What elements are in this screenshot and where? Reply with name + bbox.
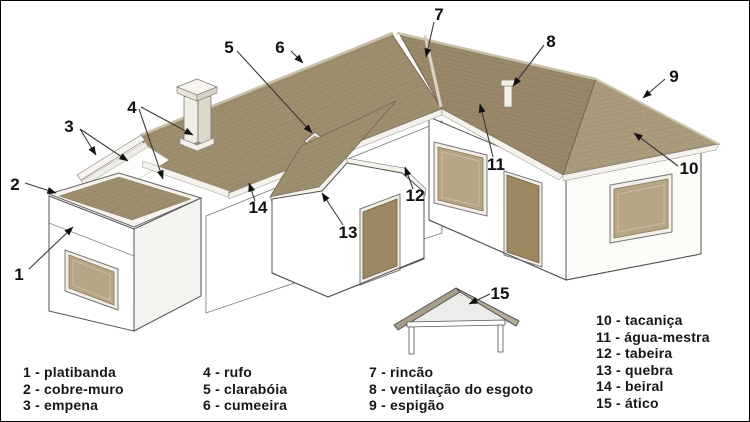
leader-2: [25, 183, 56, 193]
roof-parts-diagram: 1 2 3 4 5 6 7 8 9 10 11 12 13 14 15 1 - …: [0, 0, 750, 422]
legend-item-11: 11 - água-mestra: [596, 329, 710, 346]
callout-3: 3: [64, 117, 73, 136]
callout-7: 7: [434, 5, 443, 24]
callout-13: 13: [339, 223, 358, 242]
callout-11: 11: [487, 155, 505, 174]
legend-item-14: 14 - beiral: [596, 378, 710, 395]
flat-roof-box: [49, 173, 201, 331]
legend-item-4: 4 - rufo: [203, 364, 287, 381]
legend-item-3: 3 - empena: [23, 397, 124, 414]
legend-item-13: 13 - quebra: [596, 362, 710, 379]
legend-item-5: 5 - clarabóia: [203, 381, 287, 398]
leader-3b: [80, 129, 128, 161]
callout-2: 2: [10, 175, 19, 194]
front-door: [504, 171, 542, 267]
legend-column-1: 1 - platibanda 2 - cobre-muro 3 - empena: [23, 364, 124, 414]
legend-item-15: 15 - ático: [596, 395, 710, 412]
callout-14: 14: [249, 198, 268, 217]
wing-door: [360, 194, 400, 285]
leader-3a: [80, 129, 96, 155]
attic-wall-left: [409, 327, 414, 354]
attic-wall-right: [498, 325, 503, 352]
legend-item-7: 7 - rincão: [369, 364, 533, 381]
front-window: [434, 142, 487, 216]
legend-item-6: 6 - cumeeira: [203, 397, 287, 414]
legend-item-2: 2 - cobre-muro: [23, 381, 124, 398]
legend-column-2: 4 - rufo 5 - clarabóia 6 - cumeeira: [203, 364, 287, 414]
callout-4: 4: [127, 98, 137, 117]
legend-item-9: 9 - espigão: [369, 397, 533, 414]
callout-8: 8: [546, 32, 555, 51]
legend-item-8: 8 - ventilação do esgoto: [369, 381, 533, 398]
callout-15: 15: [491, 284, 510, 303]
chimney: [177, 79, 217, 151]
leader-9: [643, 79, 665, 98]
legend-item-10: 10 - tacaniça: [596, 312, 710, 329]
callout-10: 10: [680, 159, 699, 178]
legend-item-1: 1 - platibanda: [23, 364, 124, 381]
callout-6: 6: [275, 38, 284, 57]
callout-1: 1: [14, 265, 23, 284]
leader-6: [291, 51, 303, 63]
legend-item-12: 12 - tabeira: [596, 345, 710, 362]
callout-5: 5: [224, 38, 233, 57]
right-window: [610, 174, 672, 243]
callout-12: 12: [406, 186, 425, 205]
legend-column-3: 7 - rincão 8 - ventilação do esgoto 9 - …: [369, 364, 533, 414]
callout-9: 9: [669, 67, 678, 86]
legend-column-4: 10 - tacaniça 11 - água-mestra 12 - tabe…: [596, 312, 710, 411]
